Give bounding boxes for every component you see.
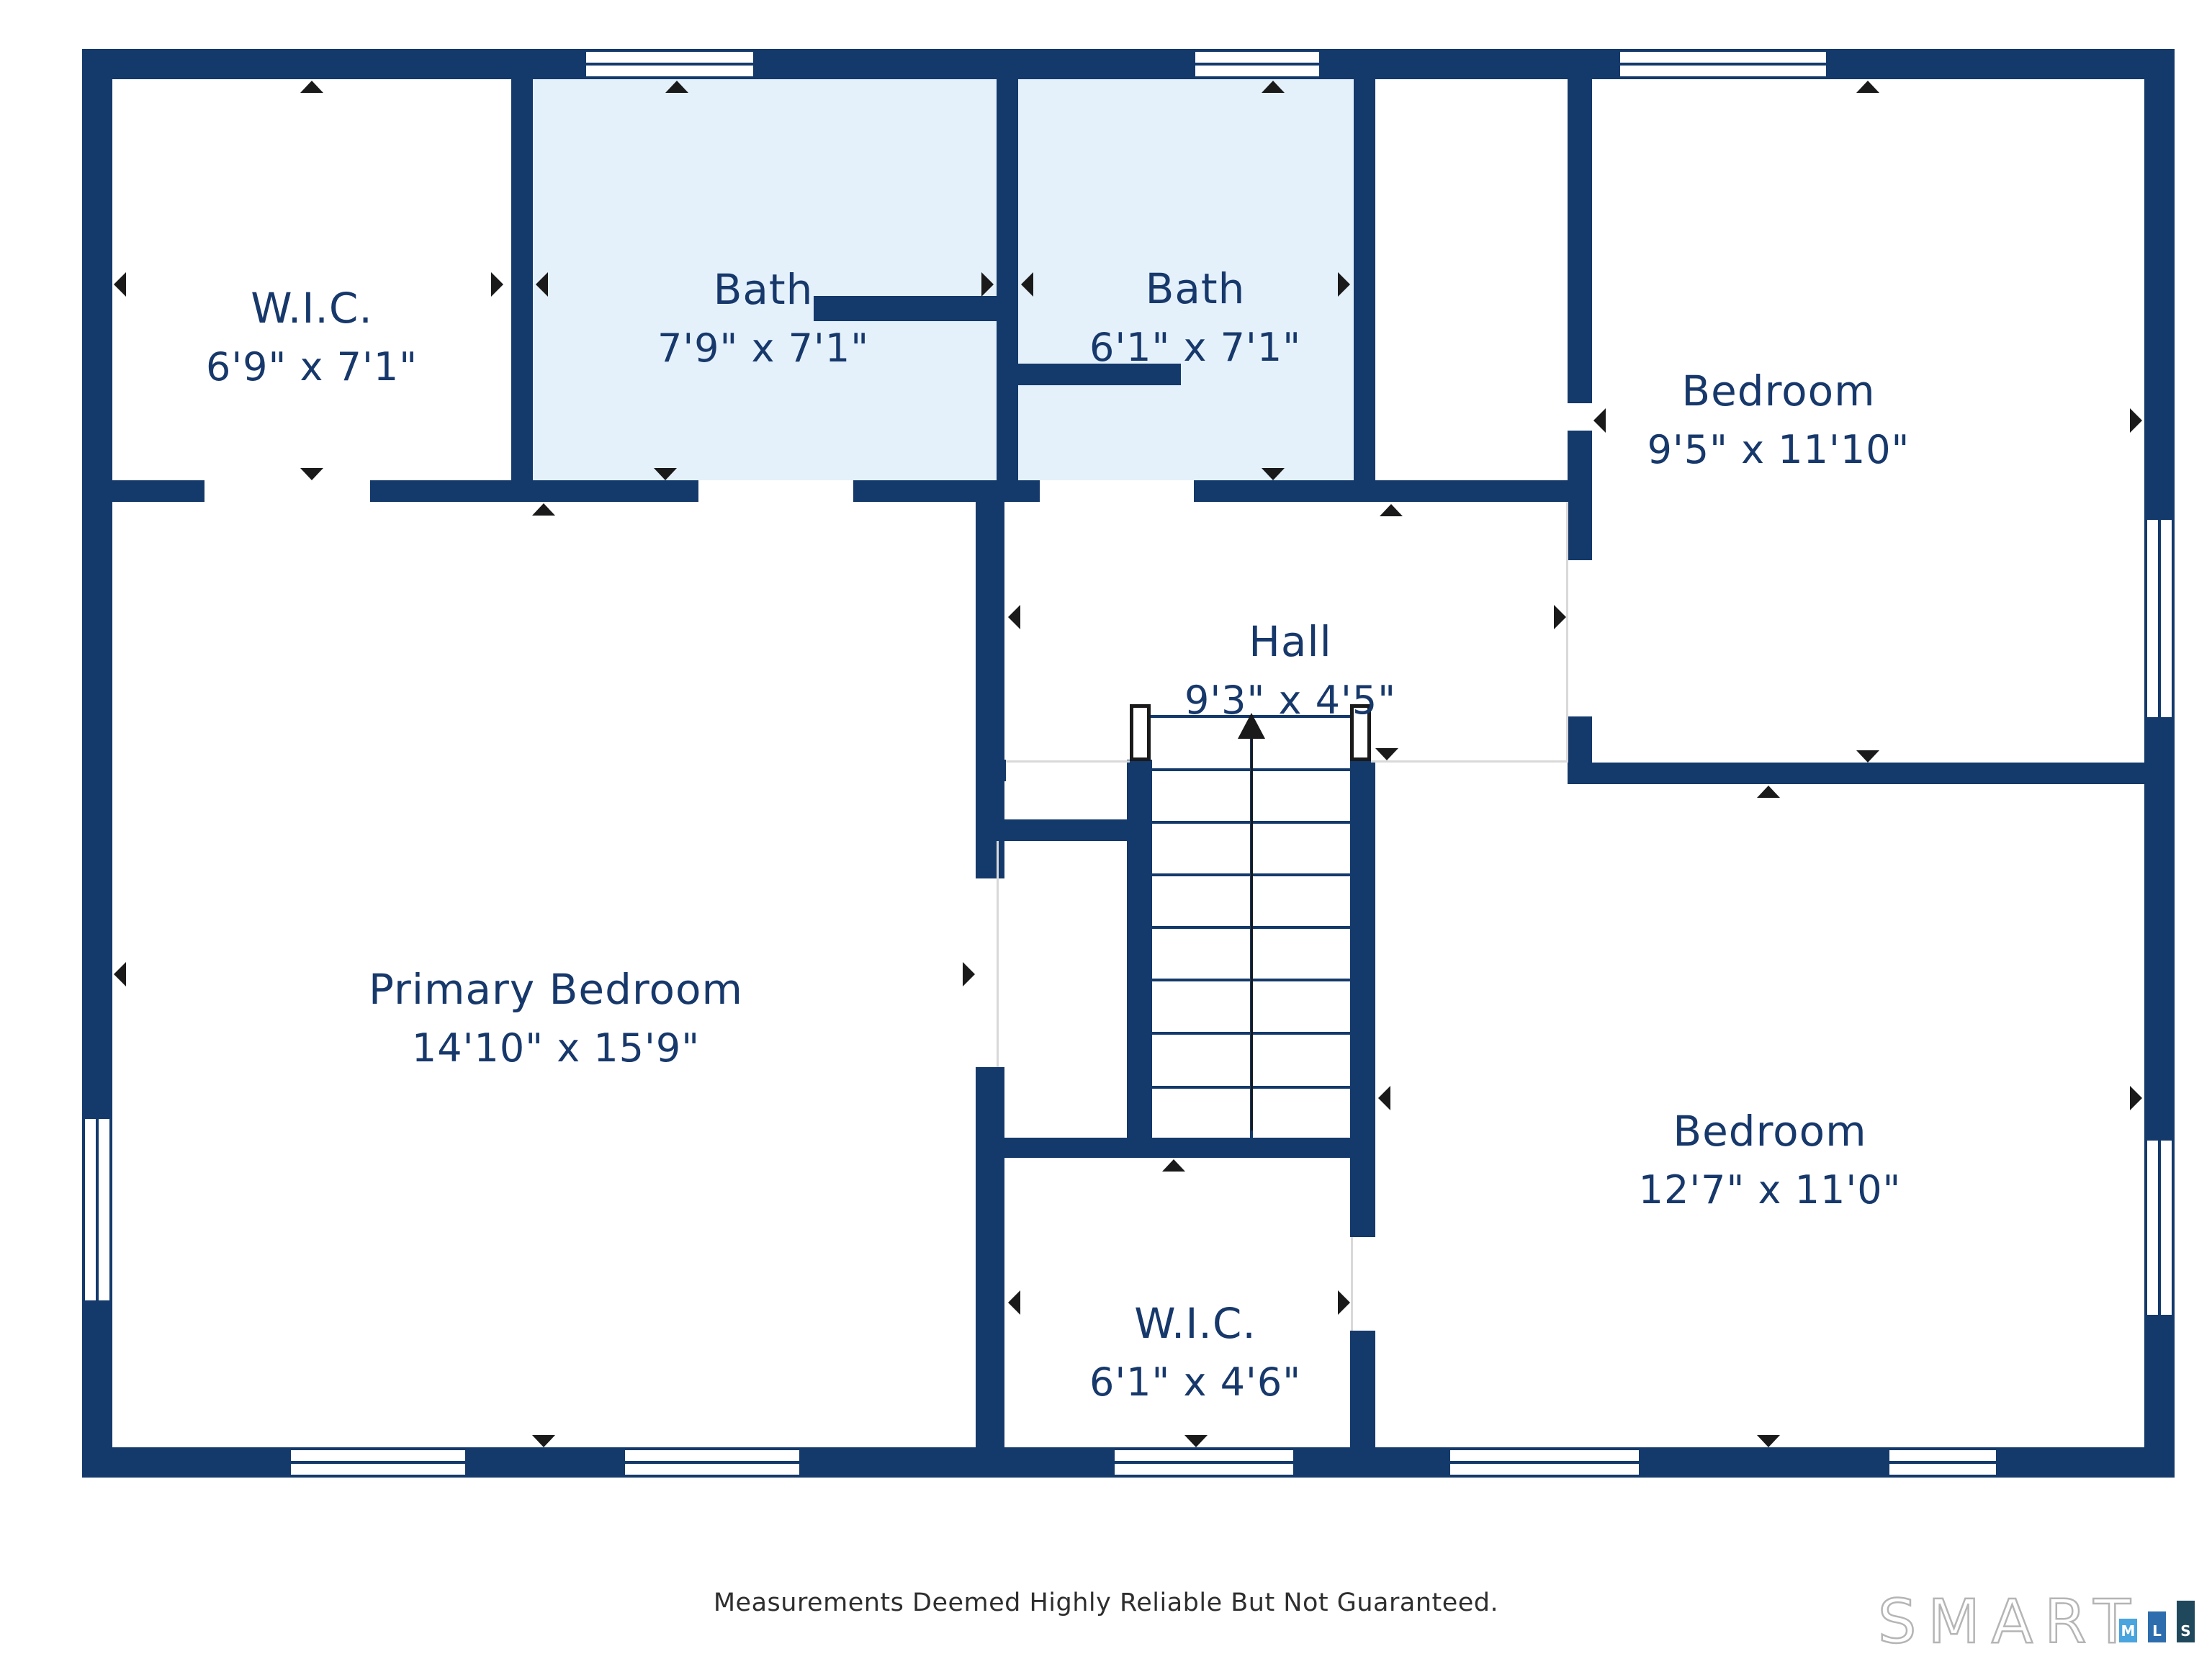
dim-arrow-down-icon xyxy=(300,468,323,480)
dim-arrow-up-icon xyxy=(1162,1159,1185,1172)
window-symbol xyxy=(583,49,756,79)
smartmls-logo: SMART M L S xyxy=(1878,1593,2209,1650)
room-label-wic-top: W.I.C. 6'9" x 7'1" xyxy=(206,279,418,397)
room-dims-label: 9'5" x 11'10" xyxy=(1647,421,1910,480)
outer-wall-top xyxy=(82,49,2175,79)
dim-arrow-left-icon xyxy=(1593,408,1606,433)
room-dims-label: 6'1" x 4'6" xyxy=(1089,1353,1301,1412)
dim-arrow-right-icon xyxy=(2130,1086,2142,1110)
window-pane-line xyxy=(1450,1461,1639,1464)
floor-line-nook xyxy=(997,841,999,1067)
room-label-bath1: Bath 7'9" x 7'1" xyxy=(657,260,869,378)
room-name-label: W.I.C. xyxy=(206,279,418,338)
wall-hall-step xyxy=(996,760,1006,781)
window-symbol xyxy=(1447,1447,1642,1478)
dim-arrow-left-icon xyxy=(1378,1086,1390,1110)
stairs-direction-arrow-shaft xyxy=(1251,734,1253,1130)
room-label-bath2: Bath 6'1" x 7'1" xyxy=(1089,259,1301,377)
dim-arrow-right-icon xyxy=(491,272,503,297)
room-name-label: Bedroom xyxy=(1639,1102,1902,1161)
floor-line-hall-left xyxy=(1006,760,1130,763)
wall-bath2-bottom-b xyxy=(1194,480,1375,502)
wall-bath1-bottom-a xyxy=(533,480,698,502)
window-symbol xyxy=(622,1447,802,1478)
dim-arrow-up-icon xyxy=(1380,504,1403,516)
window-pane-line xyxy=(96,1119,99,1300)
wall-wic1-bottom-a xyxy=(112,480,204,502)
dim-arrow-right-icon xyxy=(981,272,994,297)
wall-stair-right-upper xyxy=(1350,761,1375,1237)
wall-bedroom1-left-upper xyxy=(1568,79,1592,403)
dim-arrow-right-icon xyxy=(1338,1290,1350,1315)
dim-arrow-down-icon xyxy=(1375,748,1398,760)
floor-plan: W.I.C. 6'9" x 7'1" Bath 7'9" x 7'1" Bath… xyxy=(0,0,2212,1659)
wall-wic1-bath1 xyxy=(511,79,533,502)
window-pane-line xyxy=(2158,1141,2161,1315)
wall-stair-left xyxy=(1127,760,1152,1138)
wall-bedroom1-left-mid xyxy=(1568,431,1592,560)
dim-arrow-down-icon xyxy=(654,468,677,480)
room-dims-label: 14'10" x 15'9" xyxy=(369,1019,743,1078)
room-name-label: Bedroom xyxy=(1647,361,1910,421)
window-pane-line xyxy=(1889,1461,1996,1464)
wall-stair-right-lower xyxy=(1350,1331,1375,1447)
logo-wordmark: SMART xyxy=(1878,1593,2142,1650)
window-pane-line xyxy=(1115,1461,1293,1464)
room-label-wic-bottom: W.I.C. 6'1" x 4'6" xyxy=(1089,1294,1301,1412)
logo-block-m: M xyxy=(2119,1619,2137,1642)
dim-arrow-down-icon xyxy=(1184,1435,1208,1447)
dim-arrow-down-icon xyxy=(1262,468,1285,480)
window-symbol xyxy=(2144,517,2175,720)
dim-arrow-up-icon xyxy=(300,81,323,93)
dim-arrow-left-icon xyxy=(1021,272,1033,297)
dim-arrow-down-icon xyxy=(1757,1435,1780,1447)
wall-bath2-bottom-a xyxy=(1018,480,1040,502)
dim-arrow-up-icon xyxy=(1262,81,1285,93)
window-pane-line xyxy=(291,1461,465,1464)
room-dims-label: 9'3" x 4'5" xyxy=(1184,671,1396,730)
wall-hall-top-right xyxy=(1375,480,1568,502)
room-label-hall: Hall 9'3" x 4'5" xyxy=(1184,612,1396,730)
dim-arrow-down-icon xyxy=(532,1435,555,1447)
dim-arrow-left-icon xyxy=(536,272,548,297)
room-name-label: Bath xyxy=(657,260,869,319)
window-symbol xyxy=(288,1447,468,1478)
dim-arrow-up-icon xyxy=(665,81,688,93)
floor-line-corridor xyxy=(1566,502,1568,763)
dim-arrow-right-icon xyxy=(1554,605,1566,629)
window-symbol xyxy=(2144,1138,2175,1318)
window-symbol xyxy=(1887,1447,1999,1478)
room-dims-label: 12'7" x 11'0" xyxy=(1639,1161,1902,1220)
wall-bedroom1-left-lower xyxy=(1568,716,1592,763)
room-label-primary-bedroom: Primary Bedroom 14'10" x 15'9" xyxy=(369,960,743,1078)
wall-wic1-bottom-b xyxy=(370,480,533,502)
dim-arrow-left-icon xyxy=(114,272,126,297)
dim-arrow-right-icon xyxy=(963,962,975,986)
window-symbol xyxy=(1112,1447,1296,1478)
window-symbol xyxy=(82,1116,112,1303)
room-dims-label: 6'9" x 7'1" xyxy=(206,338,418,397)
room-label-bedroom-bottom-right: Bedroom 12'7" x 11'0" xyxy=(1639,1102,1902,1220)
dim-arrow-up-icon xyxy=(532,503,555,516)
window-pane-line xyxy=(1620,63,1826,66)
dim-arrow-up-icon xyxy=(1757,786,1780,798)
wall-bath1-bottom-b xyxy=(853,480,1018,502)
dim-arrow-right-icon xyxy=(1338,272,1350,297)
window-symbol xyxy=(1617,49,1829,79)
logo-block-s: S xyxy=(2177,1601,2195,1642)
window-pane-line xyxy=(2158,520,2161,717)
dim-arrow-down-icon xyxy=(1856,750,1879,763)
window-pane-line xyxy=(625,1461,799,1464)
logo-block-l: L xyxy=(2148,1611,2166,1642)
floor-line-wic2-door xyxy=(1351,1237,1353,1331)
wall-stair-bottom xyxy=(976,1138,1375,1158)
room-name-label: Bath xyxy=(1089,259,1301,318)
floor-line-hall-right xyxy=(1371,760,1568,763)
window-pane-line xyxy=(586,63,753,66)
dim-arrow-left-icon xyxy=(1008,605,1020,629)
dim-arrow-left-icon xyxy=(114,962,126,986)
wall-bedroom1-bottom xyxy=(1568,763,2144,784)
wall-nook-top xyxy=(976,819,1152,841)
room-name-label: W.I.C. xyxy=(1089,1294,1301,1353)
wall-bath1-bath2 xyxy=(997,79,1018,502)
window-pane-line xyxy=(1195,63,1319,66)
room-dims-label: 6'1" x 7'1" xyxy=(1089,318,1301,377)
room-label-bedroom-top-right: Bedroom 9'5" x 11'10" xyxy=(1647,361,1910,480)
wall-bath2-right xyxy=(1354,79,1375,502)
room-name-label: Hall xyxy=(1184,612,1396,671)
dim-arrow-right-icon xyxy=(2130,408,2142,433)
stair-newel-post xyxy=(1130,704,1151,761)
wall-primary-right-lower xyxy=(976,1067,1004,1447)
window-symbol xyxy=(1192,49,1322,79)
room-dims-label: 7'9" x 7'1" xyxy=(657,319,869,378)
dim-arrow-left-icon xyxy=(1008,1290,1020,1315)
dim-arrow-up-icon xyxy=(1856,81,1879,93)
room-name-label: Primary Bedroom xyxy=(369,960,743,1019)
